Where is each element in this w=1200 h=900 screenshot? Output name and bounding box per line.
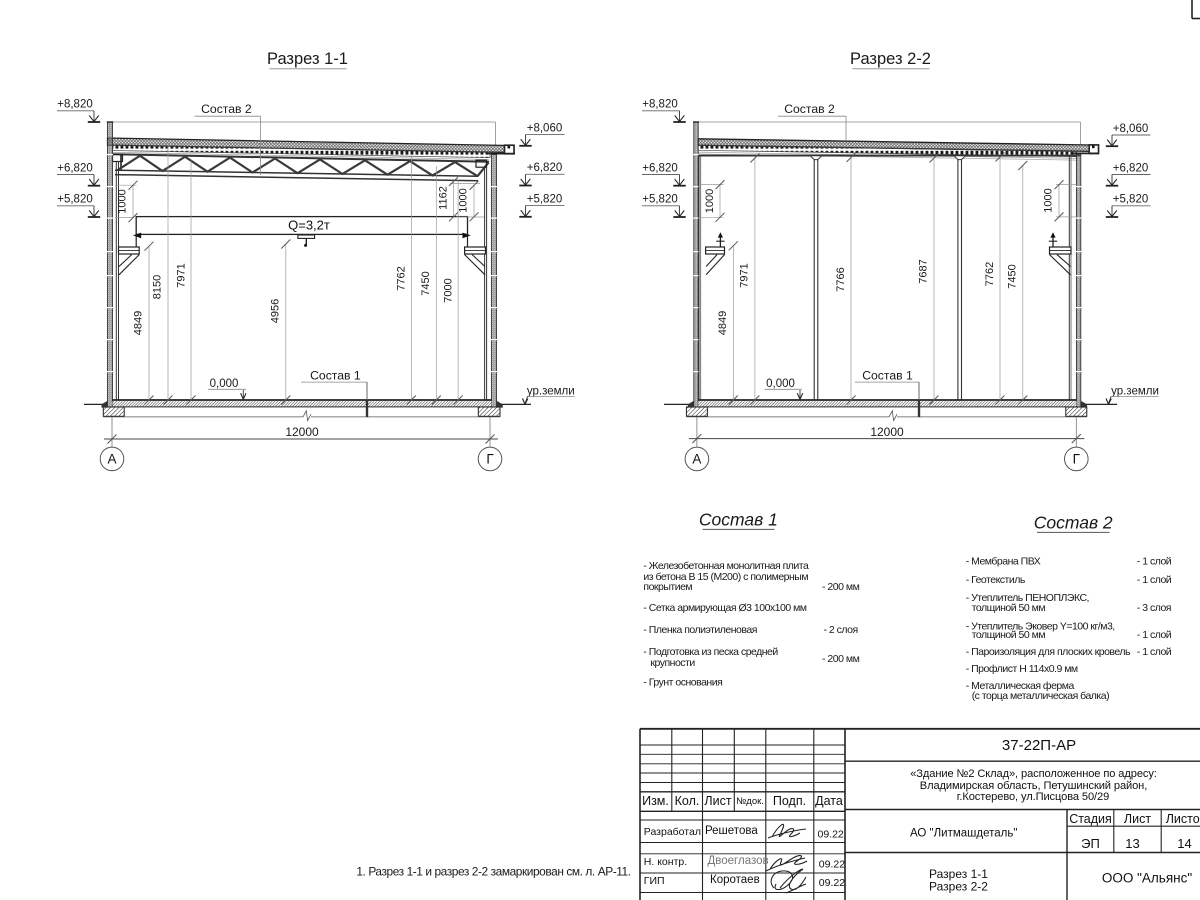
svg-text:+5,820: +5,820	[642, 194, 678, 206]
svg-text:Изм.: Изм.	[642, 794, 669, 808]
svg-text:0,000: 0,000	[210, 378, 239, 390]
svg-text:Кол.: Кол.	[675, 794, 700, 808]
svg-text:Разрез 1-1: Разрез 1-1	[267, 50, 348, 68]
svg-text:12000: 12000	[285, 425, 319, 439]
svg-text:Лист: Лист	[704, 794, 731, 808]
svg-text:крупности: крупности	[650, 657, 695, 669]
svg-text:+5,820: +5,820	[1113, 194, 1149, 206]
svg-text:1000: 1000	[1043, 188, 1055, 212]
svg-text:Решетова: Решетова	[705, 825, 758, 837]
svg-text:ЭП: ЭП	[1081, 836, 1100, 851]
svg-text:8150: 8150	[152, 275, 164, 299]
svg-text:- Сетка армирующая Ø3 100х100: - Сетка армирующая Ø3 100х100 мм	[643, 602, 806, 614]
svg-text:4956: 4956	[270, 299, 282, 323]
svg-text:покрытием: покрытием	[643, 581, 692, 593]
svg-text:7687: 7687	[917, 259, 929, 283]
svg-text:АО "Литмашдеталь": АО "Литмашдеталь"	[910, 828, 1017, 840]
svg-text:Состав 2: Состав 2	[201, 102, 252, 116]
svg-text:Лист: Лист	[1124, 812, 1151, 826]
svg-text:09.22: 09.22	[818, 829, 844, 841]
svg-text:7762: 7762	[984, 262, 996, 286]
svg-text:14: 14	[1177, 836, 1191, 851]
svg-text:+8,060: +8,060	[527, 122, 563, 134]
svg-text:09.22: 09.22	[819, 877, 845, 889]
svg-text:+6,820: +6,820	[642, 162, 678, 174]
svg-text:Подп.: Подп.	[773, 794, 806, 808]
svg-text:7766: 7766	[835, 267, 847, 291]
svg-text:- 1 слой: - 1 слой	[1137, 574, 1172, 586]
svg-text:Н. контр.: Н. контр.	[644, 856, 687, 868]
svg-text:+5,820: +5,820	[527, 193, 563, 205]
svg-text:г.Костерево, ул.Писцова 50/29: г.Костерево, ул.Писцова 50/29	[957, 791, 1109, 803]
svg-text:- Мембрана ПВХ: - Мембрана ПВХ	[966, 556, 1041, 568]
svg-text:Дата: Дата	[815, 794, 843, 808]
svg-text:Коротаев: Коротаев	[710, 874, 760, 886]
svg-text:(с торца металлическая балка): (с торца металлическая балка)	[972, 690, 1109, 702]
svg-text:1000: 1000	[458, 188, 470, 212]
svg-text:Состав 1: Состав 1	[310, 368, 361, 382]
svg-text:ООО "Альянс": ООО "Альянс"	[1102, 871, 1192, 886]
svg-text:7971: 7971	[176, 263, 188, 287]
svg-text:Г: Г	[486, 452, 494, 467]
svg-text:- 200 мм: - 200 мм	[822, 581, 860, 593]
svg-text:А: А	[107, 452, 116, 467]
svg-text:ур.земли: ур.земли	[527, 386, 575, 398]
svg-text:Состав 1: Состав 1	[862, 368, 913, 382]
svg-text:4849: 4849	[133, 311, 145, 335]
svg-text:+6,820: +6,820	[1113, 162, 1149, 174]
svg-text:- Пароизоляция для плоских кро: - Пароизоляция для плоских кровель	[966, 646, 1131, 658]
svg-text:12000: 12000	[870, 425, 904, 439]
svg-text:Разрез 2-2: Разрез 2-2	[850, 50, 931, 68]
svg-text:Г: Г	[1073, 452, 1081, 467]
svg-text:- Пленка полиэтиленовая: - Пленка полиэтиленовая	[643, 624, 757, 636]
svg-text:Q=3,2т: Q=3,2т	[288, 218, 330, 233]
svg-text:«Здание №2 Склад», расположенн: «Здание №2 Склад», расположенное по адре…	[910, 768, 1157, 780]
svg-text:№док.: №док.	[736, 796, 764, 807]
svg-text:- Грунт основания: - Грунт основания	[643, 677, 722, 689]
svg-text:А: А	[692, 452, 701, 467]
svg-text:Стадия: Стадия	[1069, 812, 1112, 826]
svg-text:- 2 слоя: - 2 слоя	[824, 624, 858, 636]
svg-text:Двоеглазов: Двоеглазов	[708, 855, 769, 867]
svg-text:- 1 слой: - 1 слой	[1137, 629, 1172, 641]
svg-text:- 3 слоя: - 3 слоя	[1137, 602, 1171, 614]
svg-text:1. Разрез 1-1 и разрез 2-2 зам: 1. Разрез 1-1 и разрез 2-2 замаркирован …	[356, 865, 630, 879]
svg-text:- Геотекстиль: - Геотекстиль	[966, 574, 1026, 586]
svg-text:ГИП: ГИП	[644, 875, 665, 887]
svg-text:Состав 2: Состав 2	[1034, 513, 1113, 533]
svg-text:Состав 2: Состав 2	[784, 102, 835, 116]
svg-text:0,000: 0,000	[766, 378, 795, 390]
svg-text:13: 13	[1125, 836, 1139, 851]
svg-text:Разработал: Разработал	[644, 826, 701, 838]
svg-text:7000: 7000	[443, 278, 455, 302]
svg-text:+6,820: +6,820	[57, 162, 93, 174]
svg-text:37-22П-АР: 37-22П-АР	[1002, 737, 1076, 754]
svg-text:7450: 7450	[1006, 264, 1018, 288]
svg-text:толщиной 50 мм: толщиной 50 мм	[972, 602, 1046, 614]
svg-text:толщиной 50 мм: толщиной 50 мм	[972, 629, 1046, 641]
svg-text:Листов: Листов	[1166, 812, 1200, 826]
svg-text:+8,060: +8,060	[1113, 123, 1149, 135]
svg-text:09.22: 09.22	[819, 859, 845, 871]
svg-text:7762: 7762	[396, 266, 408, 290]
svg-text:1000: 1000	[704, 189, 716, 213]
svg-text:ур.земли: ур.земли	[1111, 386, 1159, 398]
svg-text:- Профлист Н 114х0.9 мм: - Профлист Н 114х0.9 мм	[966, 663, 1078, 675]
svg-text:4849: 4849	[717, 311, 729, 335]
svg-text:Состав 1: Состав 1	[699, 510, 778, 530]
svg-text:- 1 слой: - 1 слой	[1137, 556, 1172, 568]
svg-text:- 1 слой: - 1 слой	[1137, 646, 1172, 658]
svg-text:1000: 1000	[117, 189, 129, 213]
svg-text:Разрез 2-2: Разрез 2-2	[929, 880, 988, 894]
svg-text:+8,820: +8,820	[57, 99, 93, 111]
svg-text:7971: 7971	[738, 263, 750, 287]
svg-text:- 200 мм: - 200 мм	[822, 653, 860, 665]
svg-text:+5,820: +5,820	[57, 194, 93, 206]
svg-text:+8,820: +8,820	[642, 99, 678, 111]
svg-text:7450: 7450	[420, 271, 432, 295]
svg-text:1162: 1162	[437, 186, 449, 210]
svg-text:+6,820: +6,820	[527, 162, 563, 174]
